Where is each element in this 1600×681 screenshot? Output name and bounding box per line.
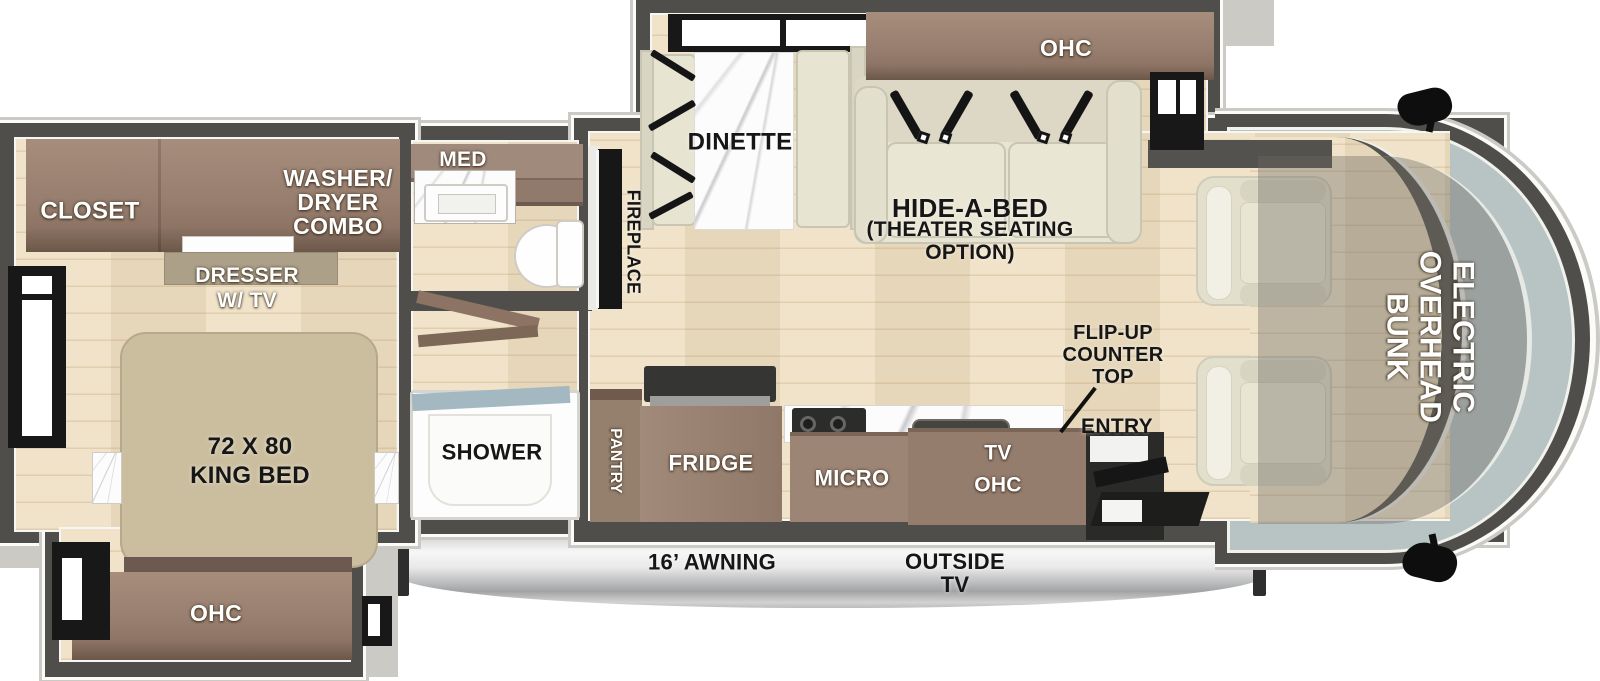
label-sofa-ohc: OHC	[1040, 35, 1092, 61]
bedroom-left-window	[8, 266, 66, 448]
label-king-bed: 72 X 80 KING BED	[190, 433, 310, 491]
label-overhead-bunk: ELECTRIC OVERHEAD BUNK	[1381, 207, 1480, 467]
label-hide-a-bed-option: (THEATER SEATING OPTION)	[866, 218, 1073, 264]
stove-burner	[830, 416, 846, 432]
fireplace-unit	[598, 149, 622, 309]
sofa-right-window	[1150, 72, 1204, 150]
label-entry: ENTRY	[1081, 415, 1153, 439]
label-shower: SHOWER	[442, 439, 543, 464]
cabinet-seam	[158, 139, 161, 252]
rv-floorplan: CLOSET WASHER/ DRYER COMBO DRESSER W/ TV…	[0, 0, 1600, 681]
label-pantry: PANTRY	[606, 396, 624, 526]
label-flip-up-counter: FLIP-UP COUNTER TOP	[1063, 322, 1164, 388]
label-bedroom-ohc: OHC	[190, 600, 242, 626]
bump-right-window	[362, 596, 392, 646]
bathroom-sink	[424, 184, 508, 222]
label-fireplace: FIREPLACE	[623, 152, 644, 332]
nightstand-right	[374, 452, 399, 504]
nightstand-left	[92, 452, 122, 504]
label-outside-tv: OUTSIDE TV	[905, 550, 1005, 596]
stove-burner	[800, 416, 816, 432]
entry-step-inner	[1090, 436, 1148, 462]
med-cabinet-lower	[513, 180, 583, 206]
label-fridge: FRIDGE	[669, 450, 754, 475]
label-washer-dryer: WASHER/ DRYER COMBO	[283, 166, 392, 238]
label-dresser-tv: DRESSER W/ TV	[195, 263, 299, 313]
awning-bar	[396, 538, 1266, 608]
entry-exterior-step-white	[1102, 500, 1142, 522]
bump-left-window	[52, 542, 110, 640]
label-closet: CLOSET	[40, 197, 139, 224]
label-micro: MICRO	[815, 465, 890, 490]
dinette-bench-right	[796, 50, 850, 228]
exterior-trim	[1218, 0, 1274, 46]
toilet-tank	[556, 220, 584, 288]
label-med: MED	[439, 148, 487, 172]
label-dinette: DINETTE	[688, 128, 793, 155]
sofa-armrest-right	[1106, 80, 1142, 244]
fireplace-highlight	[596, 150, 599, 308]
label-tv-ohc: TV OHC	[974, 438, 1022, 501]
label-awning: 16’ AWNING	[648, 549, 776, 574]
